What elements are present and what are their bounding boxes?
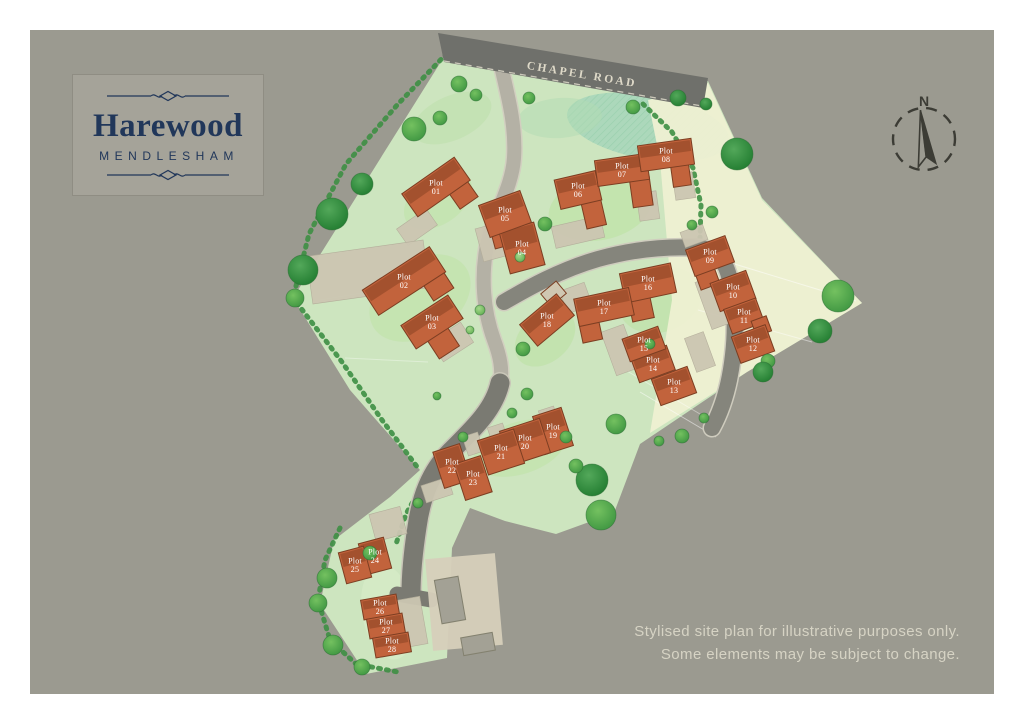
tree-icon	[808, 319, 832, 343]
tree-icon	[700, 98, 712, 110]
plot-number: 21	[497, 452, 505, 461]
tree-icon	[466, 326, 474, 334]
tree-icon	[516, 342, 530, 356]
plot-number: 09	[706, 256, 714, 265]
plot-number: 20	[521, 442, 529, 451]
plot-number: 18	[543, 320, 551, 329]
disclaimer-line-2: Some elements may be subject to change.	[634, 644, 960, 667]
plot-number: 26	[376, 607, 384, 616]
logo-box: Harewood MENDLESHAM	[72, 74, 264, 196]
tree-icon	[288, 255, 318, 285]
tree-icon	[475, 305, 485, 315]
disclaimer: Stylised site plan for illustrative purp…	[634, 621, 960, 666]
flourish-icon	[103, 167, 233, 183]
plot-number: 28	[388, 645, 396, 654]
tree-icon	[654, 436, 664, 446]
plot-number: 01	[432, 187, 440, 196]
plot-number: 15	[640, 344, 648, 353]
tree-icon	[323, 635, 343, 655]
tree-icon	[413, 498, 423, 508]
tree-icon	[606, 414, 626, 434]
tree-icon	[721, 138, 753, 170]
tree-icon	[675, 429, 689, 443]
flourish-icon	[103, 88, 233, 104]
tree-icon	[458, 432, 468, 442]
tree-icon	[699, 413, 709, 423]
plot-number: 22	[448, 466, 456, 475]
plot-number: 24	[371, 556, 379, 565]
compass-north-label: N	[919, 93, 929, 109]
tree-icon	[586, 500, 616, 530]
tree-icon	[753, 362, 773, 382]
plot-number: 08	[662, 155, 670, 164]
page: { "branding": { "title": "Harewood", "su…	[0, 0, 1024, 724]
tree-icon	[451, 76, 467, 92]
plot-number: 14	[649, 364, 657, 373]
tree-icon	[538, 217, 552, 231]
disclaimer-line-1: Stylised site plan for illustrative purp…	[634, 621, 960, 644]
tree-icon	[286, 289, 304, 307]
tree-icon	[309, 594, 327, 612]
courtyard-layer	[425, 553, 503, 656]
compass-icon: N	[878, 88, 970, 180]
tree-icon	[433, 392, 441, 400]
plot-number: 10	[729, 291, 737, 300]
tree-icon	[626, 100, 640, 114]
tree-icon	[433, 111, 447, 125]
plot-number: 03	[428, 322, 436, 331]
plot-number: 06	[574, 190, 582, 199]
logo-subtitle: MENDLESHAM	[99, 149, 239, 163]
tree-icon	[687, 220, 697, 230]
plot-number: 02	[400, 281, 408, 290]
tree-icon	[523, 92, 535, 104]
tree-icon	[822, 280, 854, 312]
tree-icon	[670, 90, 686, 106]
compass-needle-icon	[912, 109, 937, 167]
plot-number: 11	[740, 316, 748, 325]
tree-icon	[351, 173, 373, 195]
plot-number: 07	[618, 170, 626, 179]
plot-number: 16	[644, 283, 652, 292]
plot-number: 27	[382, 626, 390, 635]
tree-icon	[706, 206, 718, 218]
tree-icon	[507, 408, 517, 418]
tree-icon	[317, 568, 337, 588]
tree-icon	[316, 198, 348, 230]
tree-icon	[402, 117, 426, 141]
tree-icon	[470, 89, 482, 101]
plot-number: 05	[501, 214, 509, 223]
plot-number: 17	[600, 307, 608, 316]
tree-icon	[560, 431, 572, 443]
plot-number: 04	[518, 248, 526, 257]
plot-number: 13	[670, 386, 678, 395]
tree-icon	[354, 659, 370, 675]
plot-number: 25	[351, 565, 359, 574]
tree-icon	[569, 459, 583, 473]
plot-number: 12	[749, 344, 757, 353]
plot-number: 23	[469, 478, 477, 487]
logo-title: Harewood	[93, 110, 243, 143]
tree-icon	[521, 388, 533, 400]
plot-number: 19	[549, 431, 557, 440]
